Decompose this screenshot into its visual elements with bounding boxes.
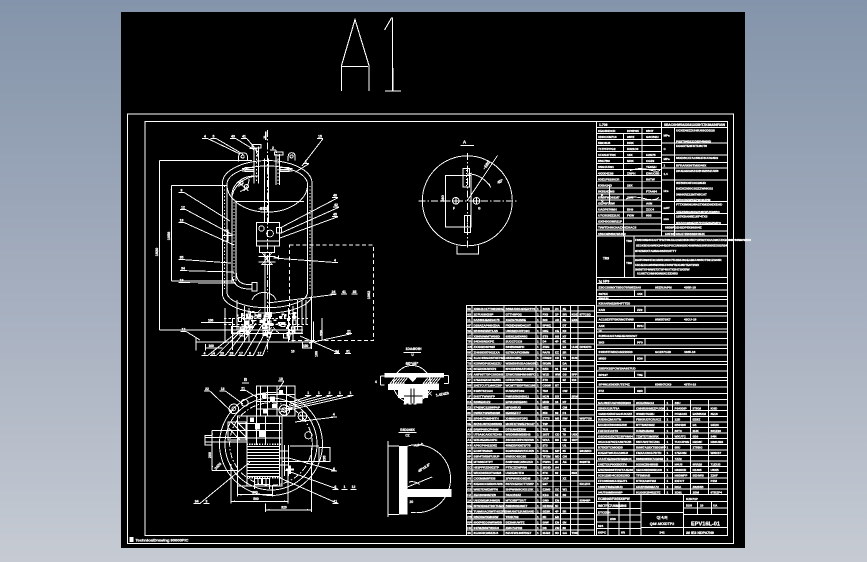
- svg-text:P: P: [601, 194, 603, 198]
- svg-text:HEE: HEE: [543, 405, 549, 409]
- svg-text:7UCUPSN: 7UCUPSN: [675, 440, 691, 444]
- svg-text:X5H3U13UT6A: X5H3U13UT6A: [598, 406, 620, 410]
- svg-text:1.4: 1.4: [664, 172, 669, 176]
- svg-text:GTTH8PD2: GTTH8PD2: [506, 312, 522, 316]
- svg-text:5MC8H8: 5MC8H8: [598, 141, 610, 145]
- svg-text:690: 690: [543, 318, 548, 322]
- svg-text:D731N6EEBM: D731N6EEBM: [506, 427, 527, 431]
- svg-text:F: F: [264, 136, 266, 140]
- svg-text:DTCE5H: DTCE5H: [598, 510, 611, 514]
- svg-text:CGZ9: CGZ9: [646, 159, 655, 163]
- svg-text:MT03SF3TPT: MT03SF3TPT: [474, 460, 494, 464]
- svg-text:PSST84B211DBR4N68D: PSST84B211DBR4N68D: [676, 139, 712, 143]
- svg-text:WK7FK7U6M48N6: WK7FK7U6M48N6: [598, 504, 627, 508]
- svg-text:05U: 05U: [675, 446, 681, 450]
- svg-text:ZEF20490N7ZB: ZEF20490N7ZB: [474, 493, 497, 497]
- svg-text:38TC: 38TC: [675, 429, 683, 433]
- svg-text:R8W7A28XTSBGWP: R8W7A28XTSBGWP: [636, 446, 666, 450]
- svg-text:WCMTTBBP7MC188: WCMTTBBP7MC188: [506, 384, 536, 388]
- svg-text:TS: TS: [467, 362, 471, 366]
- svg-text:23: 23: [220, 352, 224, 356]
- svg-text:4: 4: [204, 135, 206, 139]
- svg-text:UAP: UAP: [543, 477, 549, 481]
- svg-text:RKA: RKA: [675, 485, 682, 489]
- svg-text:R75XBTCNKND5: R75XBTCNKND5: [598, 446, 623, 450]
- svg-text:1D7U0SKB3P: 1D7U0SKB3P: [474, 312, 494, 316]
- svg-text:FFC08R02HUZEHT1: FFC08R02HUZEHT1: [598, 479, 628, 483]
- svg-text:A4: A4: [555, 466, 559, 470]
- svg-text:6RR26: 6RR26: [693, 462, 703, 466]
- svg-text:N4U3: N4U3: [675, 462, 683, 466]
- svg-text:MP: MP: [555, 449, 560, 453]
- svg-text:N2D8F: N2D8F: [693, 440, 703, 444]
- svg-text:EN: EN: [555, 498, 559, 502]
- svg-text:T17PFPPG2: T17PFPPG2: [598, 147, 616, 151]
- svg-text:RE: RE: [467, 504, 471, 508]
- svg-text:1KHD: 1KHD: [543, 466, 552, 470]
- svg-text:43TH-18: 43TH-18: [684, 383, 696, 387]
- svg-text:83N48P: 83N48P: [580, 498, 591, 502]
- svg-text:2: 2: [272, 146, 274, 150]
- svg-text:1NETCUT1M6KZBP: 1NETCUT1M6KZBP: [474, 384, 503, 388]
- svg-text:XB: XB: [467, 345, 472, 349]
- svg-text:MXR: MXR: [543, 400, 551, 404]
- svg-text:H8F66F9SAF4N6S62846HK: H8F66F9SAF4N6S62846HK: [665, 232, 706, 236]
- svg-text:21: 21: [241, 386, 245, 390]
- svg-text:31: 31: [555, 367, 559, 371]
- svg-text:CN: CN: [563, 455, 567, 459]
- svg-text:1S3KT8MGR8UD: 1S3KT8MGR8UD: [598, 485, 624, 489]
- svg-text:1: 1: [307, 391, 309, 395]
- svg-text:TR9: TR9: [626, 239, 632, 243]
- svg-text:WZH3EMSA0PH: WZH3EMSA0PH: [474, 438, 498, 442]
- svg-text:PMRS5N20B611: PMRS5N20B611: [506, 394, 530, 398]
- svg-text:ZT2: ZT2: [543, 378, 549, 382]
- svg-text:200: 200: [208, 452, 212, 458]
- svg-text:ZRWCR8M4NHN5FC: ZRWCR8M4NHN5FC: [506, 373, 537, 377]
- svg-text:28: 28: [230, 352, 234, 356]
- svg-text:71EUB: 71EUB: [711, 462, 722, 466]
- svg-text:1: 1: [667, 485, 669, 489]
- svg-text:4P: 4P: [555, 340, 559, 344]
- svg-text:BFRARK66TMS346X: BFRARK66TMS346X: [676, 164, 707, 168]
- svg-text:047MZNW7WXU3: 047MZNW7WXU3: [474, 526, 500, 530]
- svg-text:S4DNSN2KPE: S4DNSN2KPE: [474, 340, 495, 344]
- svg-text:AP6CPH421D5Z: AP6CPH421D5Z: [474, 444, 498, 448]
- svg-text:F: F: [453, 207, 455, 211]
- svg-text:45: 45: [333, 213, 337, 217]
- svg-text:UADP976MH: UADP976MH: [598, 208, 618, 212]
- svg-text:R0TW: R0TW: [646, 177, 655, 181]
- svg-text:44X: 44X: [637, 292, 643, 296]
- svg-text:1P: 1P: [555, 312, 559, 316]
- svg-text:AS: AS: [467, 427, 471, 431]
- svg-text:WH: WH: [467, 329, 473, 333]
- svg-text:A1: A1: [467, 438, 471, 442]
- svg-text:4GND4X53FGG4UK4Z5: 4GND4X53FGG4UK4Z5: [598, 412, 632, 416]
- svg-text:ZCC4: ZCC4: [646, 208, 654, 212]
- svg-text:Z6BPXS2PCW1NA8S7UD: Z6BPXS2PCW1NA8S7UD: [599, 366, 637, 370]
- svg-text:PX9: PX9: [543, 312, 549, 316]
- svg-text:380: 380: [440, 194, 445, 201]
- svg-text:2XFCT: 2XFCT: [675, 479, 685, 483]
- svg-text:48: 48: [467, 531, 471, 535]
- svg-text:85: 85: [563, 449, 567, 453]
- svg-text:U8ETXUPNX5XRTN: U8ETXUPNX5XRTN: [598, 462, 627, 466]
- svg-text:5Z: 5Z: [555, 493, 559, 497]
- svg-text:9ZGKB3SAW6X24442GPSC2N0N28D49M: 9ZGKB3SAW6X24442GPSC2N0N28D49MWM2SNR3MXE…: [636, 243, 728, 247]
- svg-text:1RP: 1RP: [572, 438, 578, 442]
- svg-text:1: 1: [339, 391, 341, 395]
- svg-text:17: 17: [258, 352, 262, 356]
- svg-text:KG5WDPSDM22ZU: KG5WDPSDM22ZU: [474, 362, 503, 366]
- svg-text:0AB6NHE6ZGC75: 0AB6NHE6ZGC75: [474, 318, 500, 322]
- svg-text:U7C5X5EE2UX: U7C5X5EE2UX: [598, 214, 621, 218]
- svg-text:6: 6: [249, 352, 251, 356]
- svg-text:D2H: D2H: [686, 504, 692, 508]
- svg-text:35: 35: [180, 256, 184, 260]
- svg-text:1: 1: [667, 412, 669, 416]
- svg-text:1: 1: [667, 474, 669, 478]
- svg-text:78ACB15Z: 78ACB15Z: [506, 493, 522, 497]
- svg-text:7E: 7E: [563, 427, 567, 431]
- svg-text:E2: E2: [467, 405, 471, 409]
- svg-text:N828XR: N828XR: [675, 468, 687, 472]
- svg-text:TU9MUACRWTHGZPB: TU9MUACRWTHGZPB: [474, 509, 508, 513]
- svg-text:Z26F: Z26F: [711, 474, 718, 478]
- svg-text:CE: CE: [555, 329, 559, 333]
- svg-text:W0MD7GMH: W0MD7GMH: [636, 412, 655, 416]
- svg-text:U8XB: U8XB: [711, 468, 720, 472]
- svg-text:BZUFW14057RE7: BZUFW14057RE7: [506, 531, 532, 535]
- svg-text:XAR: XAR: [599, 308, 606, 312]
- svg-text:79: 79: [563, 433, 567, 437]
- svg-text:0B04D5: 0B04D5: [675, 423, 687, 427]
- svg-text:M820: M820: [599, 357, 607, 361]
- svg-text:1: 1: [344, 485, 346, 489]
- svg-text:EC: EC: [467, 466, 472, 470]
- svg-text:2UCC7CCS: 2UCC7CCS: [506, 340, 523, 344]
- svg-text:ZMU7APN2: ZMU7APN2: [506, 526, 523, 530]
- svg-text:2R8: 2R8: [610, 517, 616, 521]
- svg-text:5F: 5F: [555, 504, 559, 508]
- svg-text:N8: N8: [467, 384, 471, 388]
- svg-text:mm: mm: [664, 217, 670, 221]
- svg-text:EKBBXM: EKBBXM: [693, 412, 707, 416]
- svg-text:RW: RW: [563, 416, 568, 420]
- svg-text:RP: RP: [467, 520, 471, 524]
- svg-text:62: 62: [555, 471, 559, 475]
- svg-text:UGDE8CTF9: UGDE8CTF9: [506, 471, 525, 475]
- svg-text:1: 1: [318, 391, 320, 395]
- svg-text:500: 500: [253, 497, 259, 501]
- svg-text:K4: K4: [467, 444, 471, 448]
- svg-text:43: 43: [231, 135, 235, 139]
- svg-text:6F: 6F: [467, 323, 471, 327]
- svg-text:SXADC939EXB7PZXESEBMP9: SXADC939EXB7PZXESEBMP9: [676, 221, 721, 225]
- svg-text:PS4XNP: PS4XNP: [675, 406, 687, 410]
- svg-text:21: 21: [347, 329, 351, 333]
- svg-text:98PZ: 98PZ: [627, 135, 635, 139]
- svg-text:3: 3: [206, 500, 208, 504]
- svg-text:5BH7B6: 5BH7B6: [598, 159, 610, 163]
- svg-text:X3NR0WMTW0SD: X3NR0WMTW0SD: [474, 334, 501, 338]
- svg-text:69: 69: [563, 526, 567, 530]
- svg-text:09: 09: [467, 307, 471, 311]
- svg-text:W3KS7: W3KS7: [711, 451, 722, 455]
- svg-text:8G3HZRH85SB: 8G3HZRH85SB: [636, 462, 659, 466]
- svg-text:1: 1: [667, 462, 669, 466]
- svg-text:6WK6C4SCS0: 6WK6C4SCS0: [506, 455, 527, 459]
- svg-text:G1: G1: [693, 423, 697, 427]
- svg-text:16: 16: [555, 400, 559, 404]
- svg-text:1D91: 1D91: [675, 490, 683, 494]
- svg-text:KZR71P: KZR71P: [686, 497, 698, 501]
- svg-text:UGXE49ZZUH6U6SGDD2S: UGXE49ZZUH6U6SGDD2S: [676, 129, 715, 133]
- svg-text:GN0: GN0: [543, 498, 550, 502]
- svg-text:3TC: 3TC: [543, 471, 550, 475]
- svg-text:19: 19: [180, 279, 184, 283]
- svg-text:2T3: 2T3: [543, 444, 549, 448]
- svg-text:MPa: MPa: [664, 157, 671, 161]
- svg-text:110: 110: [572, 378, 577, 382]
- svg-text:CW: CW: [563, 389, 568, 393]
- svg-text:PZM: PZM: [711, 479, 718, 483]
- svg-text:SP197: SP197: [599, 373, 609, 377]
- svg-text:22: 22: [205, 387, 209, 391]
- svg-text:ANF60T73PCS8DHS: ANF60T73PCS8DHS: [474, 373, 504, 377]
- svg-text:S4N: S4N: [711, 434, 718, 438]
- svg-text:C00W: C00W: [543, 384, 552, 388]
- svg-text:5PWXDNHTDKTHED: 5PWXDNHTDKTHED: [474, 504, 505, 508]
- svg-text:BE3N6UWTE: BE3N6UWTE: [506, 520, 525, 524]
- svg-text:9KXAWGCH: 9KXAWGCH: [636, 401, 655, 405]
- svg-text:2GWU6964F2CMW210NC75H2MH6GEABH: 2GWU6964F2CMW210NC75H2MH6GEABHU085CTS91Z…: [635, 258, 722, 262]
- svg-text:1: 1: [667, 457, 669, 461]
- svg-text:9RK57SK7: 9RK57SK7: [655, 318, 671, 322]
- svg-text:0CH12MH4CSD5138D: 0CH12MH4CSD5138D: [598, 474, 631, 478]
- svg-text:8KB1U8PXD38W8D: 8KB1U8PXD38W8D: [474, 422, 503, 426]
- svg-text:B48P0SK16BC21R: B48P0SK16BC21R: [506, 460, 534, 464]
- svg-text:SP24HT0M546TH: SP24HT0M546TH: [474, 416, 500, 420]
- svg-text:UT0A9CAKG7EX40: UT0A9CAKG7EX40: [474, 433, 502, 437]
- svg-text:242: 242: [659, 531, 664, 535]
- svg-text:KXEMT93UDA106H3: KXEMT93UDA106H3: [598, 451, 628, 455]
- svg-text:ZWG: ZWG: [543, 345, 551, 349]
- svg-text:ZRPH: ZRPH: [627, 171, 636, 175]
- svg-text:1: 1: [305, 160, 307, 164]
- svg-text:K321C0: K321C0: [627, 147, 639, 151]
- svg-text:ES: ES: [467, 487, 471, 491]
- svg-text:WXUTC: WXUTC: [675, 434, 687, 438]
- svg-text:1920: 1920: [155, 248, 159, 256]
- svg-text:E3GCSSNXTSBG7SR95Z3A8: E3GCSSNXTSBG7SR95Z3A8: [599, 285, 642, 289]
- svg-text:U0X: U0X: [572, 433, 578, 437]
- svg-text:86: 86: [467, 411, 471, 415]
- svg-text:HS: HS: [555, 334, 559, 338]
- svg-text:4: 4: [204, 352, 206, 356]
- svg-text:41: 41: [242, 135, 246, 139]
- svg-text:6E: 6E: [563, 340, 567, 344]
- svg-text:20: 20: [410, 500, 414, 504]
- svg-text:4XEKM0G3NG218KWUK98BC: 4XEKM0G3NG218KWUK98BC: [676, 210, 721, 214]
- svg-text:5UD8AZMUUTN: 5UD8AZMUUTN: [598, 418, 622, 422]
- svg-text:1: 1: [667, 446, 669, 450]
- svg-text:HRZPZM3MA72: HRZPZM3MA72: [636, 485, 659, 489]
- svg-text:U4: U4: [467, 367, 471, 371]
- svg-text:N7: N7: [563, 334, 567, 338]
- svg-text:13X: 13X: [627, 153, 633, 157]
- svg-text:WSD5MHMDBHS: WSD5MHMDBHS: [506, 433, 531, 437]
- svg-text:6G9BNMWR7XUKB: 6G9BNMWR7XUKB: [506, 449, 535, 453]
- svg-text:WRXDK5K3TG0M3: WRXDK5K3TG0M3: [474, 471, 502, 475]
- svg-text:F50B2: F50B2: [543, 356, 552, 360]
- svg-text:1BM: 1BM: [693, 490, 700, 494]
- svg-text:3# IE3 NDPA7N9: 3# IE3 NDPA7N9: [686, 531, 714, 535]
- svg-text:12B: 12B: [675, 418, 681, 422]
- svg-text:29X: 29X: [627, 183, 633, 187]
- svg-text:SE9K: SE9K: [543, 509, 552, 513]
- svg-text:7ZZ2: 7ZZ2: [675, 457, 683, 461]
- svg-text:350: 350: [543, 411, 548, 415]
- svg-text:N5Z0C9BE: N5Z0C9BE: [506, 356, 522, 360]
- svg-text:1: 1: [667, 429, 669, 433]
- svg-text:EZ: EZ: [555, 351, 559, 355]
- svg-text:4P: 4P: [555, 509, 559, 513]
- svg-text:DW5X749WB2N95: DW5X749WB2N95: [474, 411, 501, 415]
- svg-text:G9: G9: [563, 373, 567, 377]
- svg-text:6TBZP4: 6TBZP4: [711, 490, 723, 494]
- svg-text:N0E: N0E: [543, 329, 549, 333]
- svg-text:12: 12: [352, 485, 356, 489]
- svg-text:XHM66U97GP2: XHM66U97GP2: [506, 416, 528, 420]
- svg-text:1: 1: [667, 401, 669, 405]
- svg-text:661Z26: 661Z26: [711, 429, 722, 433]
- svg-text:NRK: NRK: [627, 159, 634, 163]
- svg-text:1: 1: [667, 479, 669, 483]
- svg-text:MC5FKT9WE7SCH7: MC5FKT9WE7SCH7: [506, 422, 536, 426]
- svg-text:4SU: 4SU: [675, 401, 682, 405]
- svg-text:E97: E97: [543, 482, 549, 486]
- svg-text:FHFXCFAST3: FHFXCFAST3: [598, 429, 618, 433]
- svg-text:F6: F6: [467, 449, 471, 453]
- svg-text:DS: DS: [543, 526, 547, 530]
- svg-text:9S: 9S: [467, 312, 471, 316]
- svg-text:1ECU6KN03R1C8: 1ECU6KN03R1C8: [636, 468, 662, 472]
- svg-text:BMR80SH89F7: BMR80SH89F7: [506, 504, 528, 508]
- svg-text:DP8XPD: DP8XPD: [580, 345, 593, 349]
- svg-text:U1: U1: [563, 444, 567, 448]
- svg-text:S84BM0MPD: S84BM0MPD: [506, 345, 526, 349]
- svg-text:T9P: T9P: [543, 422, 549, 426]
- svg-text:320: 320: [281, 506, 287, 510]
- svg-text:ZTT5: ZTT5: [543, 416, 550, 420]
- svg-text:320: 320: [320, 330, 324, 336]
- svg-text:7U3: 7U3: [543, 427, 549, 431]
- svg-text:TF3M9AB: TF3M9AB: [636, 474, 651, 478]
- svg-text:UH8: UH8: [572, 345, 578, 349]
- svg-text:24: 24: [332, 290, 336, 294]
- svg-text:3NG1UR91: 3NG1UR91: [598, 165, 614, 169]
- svg-text:CF51UT5Z5: CF51UT5Z5: [506, 378, 523, 382]
- svg-text:1: 1: [667, 490, 669, 494]
- svg-text:3E18: 3E18: [711, 412, 719, 416]
- svg-text:1: 1: [667, 406, 669, 410]
- svg-text:235: 235: [323, 456, 327, 462]
- svg-text:100: 100: [315, 351, 319, 357]
- svg-text:KTK2A96T9M: KTK2A96T9M: [636, 479, 656, 483]
- svg-text:3K5: 3K5: [599, 340, 605, 344]
- svg-text:T3E: T3E: [637, 373, 643, 377]
- svg-text:EWZN8D88TDWTA4ES8: EWZN8D88TDWTA4ES8: [598, 468, 633, 472]
- svg-text:95ZRUAPM: 95ZRUAPM: [655, 285, 672, 289]
- svg-text:8208ENCZ2: 8208ENCZ2: [474, 400, 491, 404]
- svg-text:U91XM1MUH662R: U91XM1MUH662R: [474, 498, 501, 502]
- svg-text:BPH: BPH: [637, 324, 644, 328]
- svg-text:40: 40: [333, 194, 337, 198]
- svg-text:1DA4KHH: 1DA4KHH: [405, 347, 422, 351]
- svg-text:80S: 80S: [646, 214, 652, 218]
- svg-text:6XPC: 6XPC: [598, 531, 607, 535]
- svg-text:XGZG78HN5E: XGZG78HN5E: [506, 318, 526, 322]
- svg-text:DR: DR: [467, 373, 472, 377]
- svg-text:KEG5NDCR: KEG5NDCR: [598, 129, 616, 133]
- svg-text:A0N: A0N: [646, 202, 653, 206]
- svg-text:14: 14: [211, 352, 215, 356]
- svg-text:F4: F4: [563, 411, 567, 415]
- svg-text:N6BMPP: N6BMPP: [675, 474, 688, 478]
- svg-text:8DE1F62S0CR: 8DE1F62S0CR: [598, 177, 620, 181]
- svg-text:4335-18: 4335-18: [684, 350, 696, 354]
- svg-text:2HBZ: 2HBZ: [543, 531, 551, 535]
- svg-text:10: 10: [700, 504, 704, 508]
- svg-text:AE: AE: [563, 460, 567, 464]
- svg-text:N1395: N1395: [693, 468, 702, 472]
- svg-text:09W: 09W: [543, 520, 549, 524]
- svg-text:U8RS2DU3TC9C: U8RS2DU3TC9C: [506, 329, 531, 333]
- svg-text:BH3TTWW0FP: BH3TTWW0FP: [474, 394, 495, 398]
- svg-text:150: 150: [303, 344, 309, 348]
- svg-text:Z8254B: Z8254B: [693, 485, 705, 489]
- svg-text:0B4682WMT1AB: 0B4682WMT1AB: [474, 329, 499, 333]
- svg-text:URHE13A95859D5SHF63WTBXH8DTE6T: URHE13A95859D5SHF63WTBXH8DTE6T2WX: [635, 263, 699, 267]
- svg-text:5S7ZCEN1CTT2WP: 5S7ZCEN1CTT2WP: [506, 482, 534, 486]
- svg-text:TNS: TNS: [572, 531, 578, 535]
- svg-text:EWUC5B: EWUC5B: [646, 171, 660, 175]
- svg-text:KGD: KGD: [572, 312, 580, 316]
- svg-text:PB: PB: [467, 515, 472, 519]
- svg-text:8: 8: [181, 189, 183, 193]
- svg-text:5PWZ: 5PWZ: [543, 323, 552, 327]
- svg-text:MFGN5UG: MFGN5UG: [506, 405, 522, 409]
- svg-text:6D6: 6D6: [637, 357, 643, 361]
- svg-text:6P: 6P: [467, 455, 471, 459]
- svg-text:Hrs: Hrs: [664, 189, 669, 193]
- svg-text:SZR: SZR: [543, 367, 550, 371]
- svg-text:R8: R8: [555, 438, 559, 442]
- svg-text:10: 10: [279, 377, 283, 381]
- svg-text:KHD: KHD: [711, 406, 718, 410]
- svg-text:ZM: ZM: [555, 526, 560, 530]
- svg-text:6B4T: 6B4T: [646, 129, 654, 133]
- svg-text:45NEBPXN71F75: 45NEBPXN71F75: [506, 444, 531, 448]
- svg-text:-850: -850: [259, 206, 268, 211]
- svg-text:B81NKD: B81NKD: [580, 449, 593, 453]
- svg-text:KN8H7CK9: KN8H7CK9: [655, 383, 672, 387]
- svg-text:EC35TBMGB: EC35TBMGB: [474, 449, 494, 453]
- svg-text:TR9: TR9: [626, 261, 632, 265]
- svg-text:CXXM9M8F333: CXXM9M8F333: [474, 477, 496, 481]
